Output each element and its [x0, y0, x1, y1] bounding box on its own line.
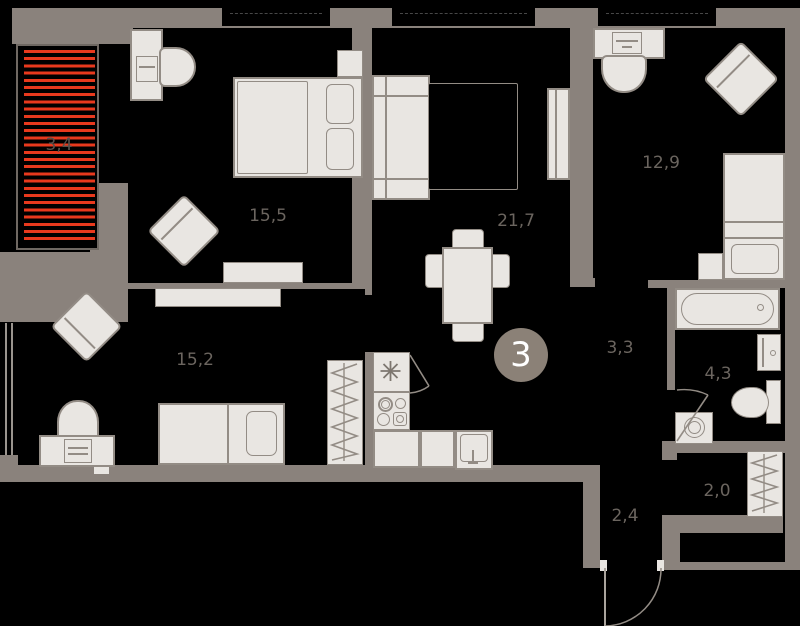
bed-sheet-line — [237, 81, 308, 174]
sofa-mattress — [428, 83, 518, 190]
kitchen-tap — [468, 462, 478, 464]
room-label-bedroom-right: 12,9 — [642, 153, 680, 173]
wall-segment — [648, 280, 785, 288]
computer-detail — [139, 66, 155, 68]
wardrobe-divider — [725, 237, 783, 239]
entry-door-arc — [590, 555, 710, 626]
wall-segment — [667, 288, 675, 390]
threshold-mark — [94, 466, 109, 474]
office-chair — [159, 47, 196, 87]
sofa-bed — [372, 75, 430, 200]
wall-segment — [570, 278, 595, 287]
shelf — [155, 288, 281, 307]
window-icon — [222, 2, 330, 26]
room-label-hall: 3,3 — [606, 338, 633, 358]
room-label-entry-corridor: 2,4 — [611, 506, 638, 526]
sink-detail — [762, 338, 764, 367]
wall-segment — [583, 465, 600, 568]
wall-segment — [570, 8, 593, 287]
computer-icon — [64, 439, 92, 463]
room-label-living-kitchen: 21,7 — [497, 211, 535, 231]
toilet-bowl — [731, 387, 769, 418]
dining-chair — [490, 254, 510, 288]
pillow — [326, 84, 354, 124]
kitchen-door-arc — [403, 348, 443, 400]
sofa-armrest-line — [374, 178, 428, 180]
computer-icon — [612, 32, 642, 54]
wall-segment — [785, 8, 800, 570]
room-label-bedroom-bottom: 15,2 — [176, 350, 214, 370]
computer-detail — [68, 447, 88, 449]
pillow — [246, 411, 277, 456]
bed-divider-line — [227, 405, 229, 463]
office-chair — [601, 55, 647, 93]
kitchen-counter — [420, 430, 455, 468]
sofa-armrest-line — [374, 95, 428, 97]
cabinet — [698, 253, 723, 280]
floor-plan: 3,4 15,5 21,7 12,9 3,3 4,3 2,0 2,4 15,2 … — [0, 0, 800, 626]
sink-tap — [770, 350, 776, 356]
computer-icon — [136, 56, 158, 82]
stove-burner — [377, 413, 390, 426]
dining-table — [442, 247, 493, 324]
wardrobe — [327, 360, 363, 465]
bathtub-drain — [757, 304, 764, 311]
room-label-storage: 2,0 — [703, 481, 730, 501]
wall-segment — [12, 8, 133, 44]
computer-detail — [622, 46, 632, 48]
wardrobe-divider — [725, 221, 783, 223]
bathroom-door-arc — [665, 385, 715, 445]
kitchen-sink-basin — [460, 434, 488, 462]
dining-chair — [452, 321, 484, 342]
computer-detail — [68, 453, 88, 455]
room-label-balcony: 3,4 — [45, 135, 72, 155]
window-icon — [392, 2, 535, 26]
unit-number-badge: 3 — [494, 328, 548, 382]
tv-stand — [547, 88, 570, 180]
tv-stand-line — [555, 90, 557, 178]
room-label-bathroom: 4,3 — [704, 364, 731, 384]
wardrobe-hatch — [748, 452, 781, 515]
armchair — [147, 194, 221, 268]
bathroom-sink — [757, 334, 781, 371]
wall-segment — [365, 352, 373, 468]
nightstand — [337, 50, 363, 77]
wall-segment — [0, 465, 583, 482]
wall-segment — [662, 515, 783, 533]
computer-detail — [616, 40, 638, 42]
storage-wardrobe — [747, 451, 783, 517]
pillow — [326, 128, 354, 170]
room-label-bedroom-top: 15,5 — [249, 206, 287, 226]
stove-burner — [396, 415, 404, 423]
window-icon — [11, 323, 13, 455]
kitchen-counter — [373, 430, 420, 468]
wardrobe-hatch — [328, 361, 361, 463]
stove-burner — [381, 400, 390, 409]
window-icon — [5, 323, 7, 455]
armchair — [703, 41, 779, 117]
window-icon — [598, 2, 716, 26]
wardrobe-drawer — [731, 244, 779, 274]
dresser — [223, 262, 303, 283]
